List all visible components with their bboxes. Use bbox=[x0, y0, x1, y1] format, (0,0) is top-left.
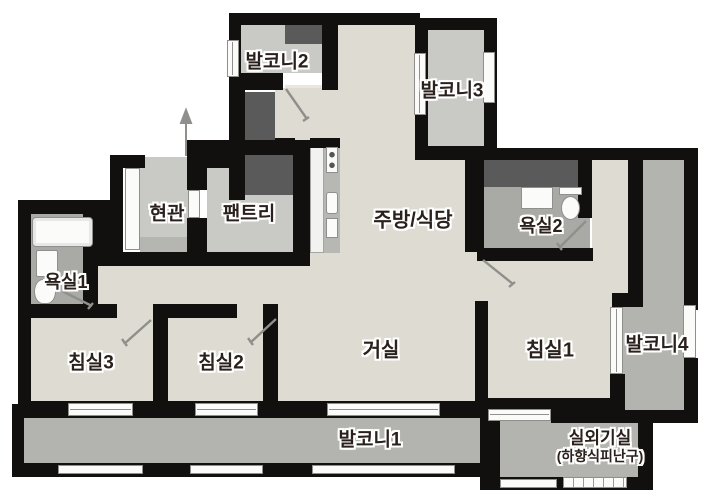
bathtub bbox=[32, 217, 93, 247]
bedroom3-window bbox=[68, 403, 133, 416]
wall-segment bbox=[612, 410, 698, 423]
bedroom1-bottom-window bbox=[488, 409, 551, 421]
room-label-kitchen-dining: 주방/식당 bbox=[373, 204, 452, 233]
wall-segment bbox=[684, 148, 698, 310]
wall-segment bbox=[612, 293, 643, 307]
wall-segment bbox=[30, 304, 117, 318]
kitchen-panel bbox=[326, 192, 338, 214]
kitchen-counter bbox=[310, 143, 324, 253]
balcony1-outer-window-1 bbox=[58, 465, 143, 474]
balcony2-duct bbox=[285, 25, 322, 44]
kitchen-sink bbox=[326, 218, 338, 238]
room-label-bedroom1: 침실1 bbox=[526, 334, 574, 363]
bath2-sink bbox=[521, 187, 553, 209]
room-label-bath2: 욕실2 bbox=[519, 212, 562, 238]
room-label-bath1: 욕실1 bbox=[44, 268, 87, 294]
bath2-toilet-bowl bbox=[561, 196, 580, 220]
wall-segment bbox=[322, 13, 338, 90]
balcony1-outer-window-3 bbox=[312, 465, 455, 474]
evacuation-hatch bbox=[563, 477, 627, 488]
wall-segment bbox=[110, 155, 145, 168]
wall-segment bbox=[123, 252, 310, 266]
duct-shaft bbox=[245, 155, 293, 195]
balcony1-outer-window-2 bbox=[190, 465, 263, 474]
stove-icon bbox=[326, 147, 338, 173]
outdoor-unit-outer-window bbox=[500, 479, 557, 488]
wall-segment bbox=[628, 155, 643, 307]
bath2-toilet-tank bbox=[559, 187, 582, 195]
room-label-living: 거실 bbox=[363, 334, 400, 363]
wall-segment bbox=[153, 304, 168, 401]
room-label-bedroom2: 침실2 bbox=[198, 348, 244, 375]
wall-segment bbox=[465, 148, 484, 252]
bath2-duct bbox=[482, 158, 590, 187]
room-label-pantry: 팬트리 bbox=[223, 199, 275, 226]
room-label-balcony1: 발코니1 bbox=[338, 425, 401, 452]
room-label-balcony3: 발코니3 bbox=[420, 76, 483, 103]
wall-segment bbox=[684, 358, 698, 412]
wall-segment bbox=[207, 140, 247, 168]
wall-segment bbox=[263, 304, 278, 401]
room-label-outdoor-unit: 실외기실 bbox=[569, 424, 632, 449]
bedroom1-corridor-floor bbox=[592, 160, 628, 295]
wall-segment bbox=[187, 218, 207, 252]
balcony4-floor bbox=[623, 307, 684, 411]
room-label-balcony4: 발코니4 bbox=[625, 330, 688, 357]
wall-segment bbox=[187, 168, 207, 190]
bedroom2-window bbox=[195, 403, 258, 416]
room-label-balcony2: 발코니2 bbox=[245, 47, 308, 74]
room-label-bedroom3: 침실3 bbox=[68, 348, 114, 375]
entrance-step bbox=[140, 237, 188, 252]
wall-segment bbox=[551, 409, 615, 423]
balcony3-right-window bbox=[483, 52, 495, 103]
wall-segment bbox=[168, 304, 237, 318]
wall-segment bbox=[477, 248, 593, 261]
kitchen-top-floor bbox=[338, 22, 417, 153]
room-label-entrance: 현관 bbox=[150, 199, 185, 226]
room-sublabel-outdoor-unit: (하향식피난구) bbox=[557, 446, 644, 466]
entrance-pantry-door-leaf bbox=[188, 190, 200, 218]
wall-segment bbox=[475, 301, 488, 411]
balcony4-upper-floor bbox=[641, 160, 684, 307]
wall-segment bbox=[293, 140, 310, 253]
kitchen-corridor-floor bbox=[275, 88, 338, 143]
living-window bbox=[327, 403, 440, 416]
bedroom1-balcony4-window bbox=[610, 307, 623, 374]
balcony1-floor bbox=[22, 418, 480, 463]
entrance-closet bbox=[125, 168, 140, 250]
duct-shaft bbox=[245, 92, 275, 140]
floor-plan: 발코니2 발코니3 현관 팬트리 주방/식당 욕실2 욕실1 침실3 침실2 거… bbox=[0, 0, 710, 503]
balcony2-window bbox=[227, 40, 239, 77]
